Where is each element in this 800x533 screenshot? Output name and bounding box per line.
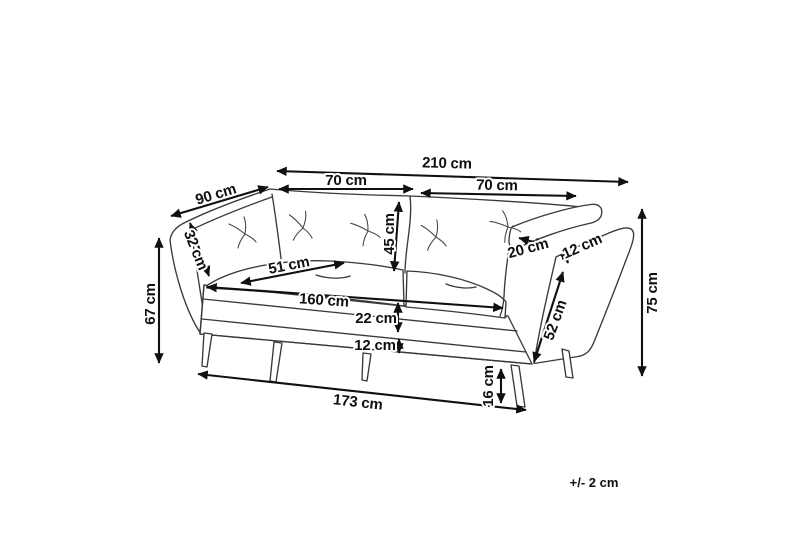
dimension-back-section-right-label: 70 cm <box>476 177 518 195</box>
dimension-leg-height: 16 cm <box>480 365 501 407</box>
dimension-seat-cushion-thickness-label: 22 cm <box>355 310 397 327</box>
dimension-base-rail-label: 12 cm <box>354 337 396 354</box>
tuft-mark <box>419 218 449 252</box>
sofa-leg <box>511 365 525 407</box>
dimension-back-cushion: 32 cm <box>180 223 211 276</box>
sofa-leg <box>202 333 212 367</box>
tuft-mark <box>284 208 317 244</box>
dimension-seat-width-label: 160 cm <box>299 290 350 310</box>
sofa-back-left-seam <box>272 194 282 266</box>
dimension-leg-height-label: 16 cm <box>480 365 497 407</box>
sofa-dimension-diagram: 210 cm 70 cm 70 cm 90 cm 32 cm 45 cm 67 … <box>0 0 800 533</box>
dimension-backrest-height: 45 cm <box>381 202 399 271</box>
sofa-dimension-diagram-page: 210 cm 70 cm 70 cm 90 cm 32 cm 45 cm 67 … <box>0 0 800 533</box>
dimension-depth-label: 90 cm <box>194 180 239 208</box>
dimension-backrest-height-label: 45 cm <box>381 213 398 255</box>
tuft-mark <box>350 213 381 247</box>
dimension-base-width-label: 173 cm <box>332 391 383 414</box>
dimension-base-rail: 12 cm <box>354 337 399 354</box>
tuft-mark <box>229 217 256 248</box>
sofa-back-center-seam <box>405 196 411 273</box>
sofa-drawing <box>170 189 634 407</box>
sofa-leg <box>362 353 371 381</box>
dimension-total-width-label: 210 cm <box>422 154 472 172</box>
dimension-depth: 90 cm <box>171 180 268 216</box>
sofa-leg <box>270 342 282 382</box>
dimension-arm-height-left: 67 cm <box>142 238 159 363</box>
dimension-total-height-label: 75 cm <box>644 272 661 314</box>
dimension-back-cushion-label: 32 cm <box>180 228 211 273</box>
dimension-total-height: 75 cm <box>642 209 661 376</box>
dimension-back-section-left-label: 70 cm <box>325 172 367 189</box>
dimension-arm-height-left-label: 67 cm <box>142 283 159 325</box>
tolerance-note: +/- 2 cm <box>570 475 619 490</box>
